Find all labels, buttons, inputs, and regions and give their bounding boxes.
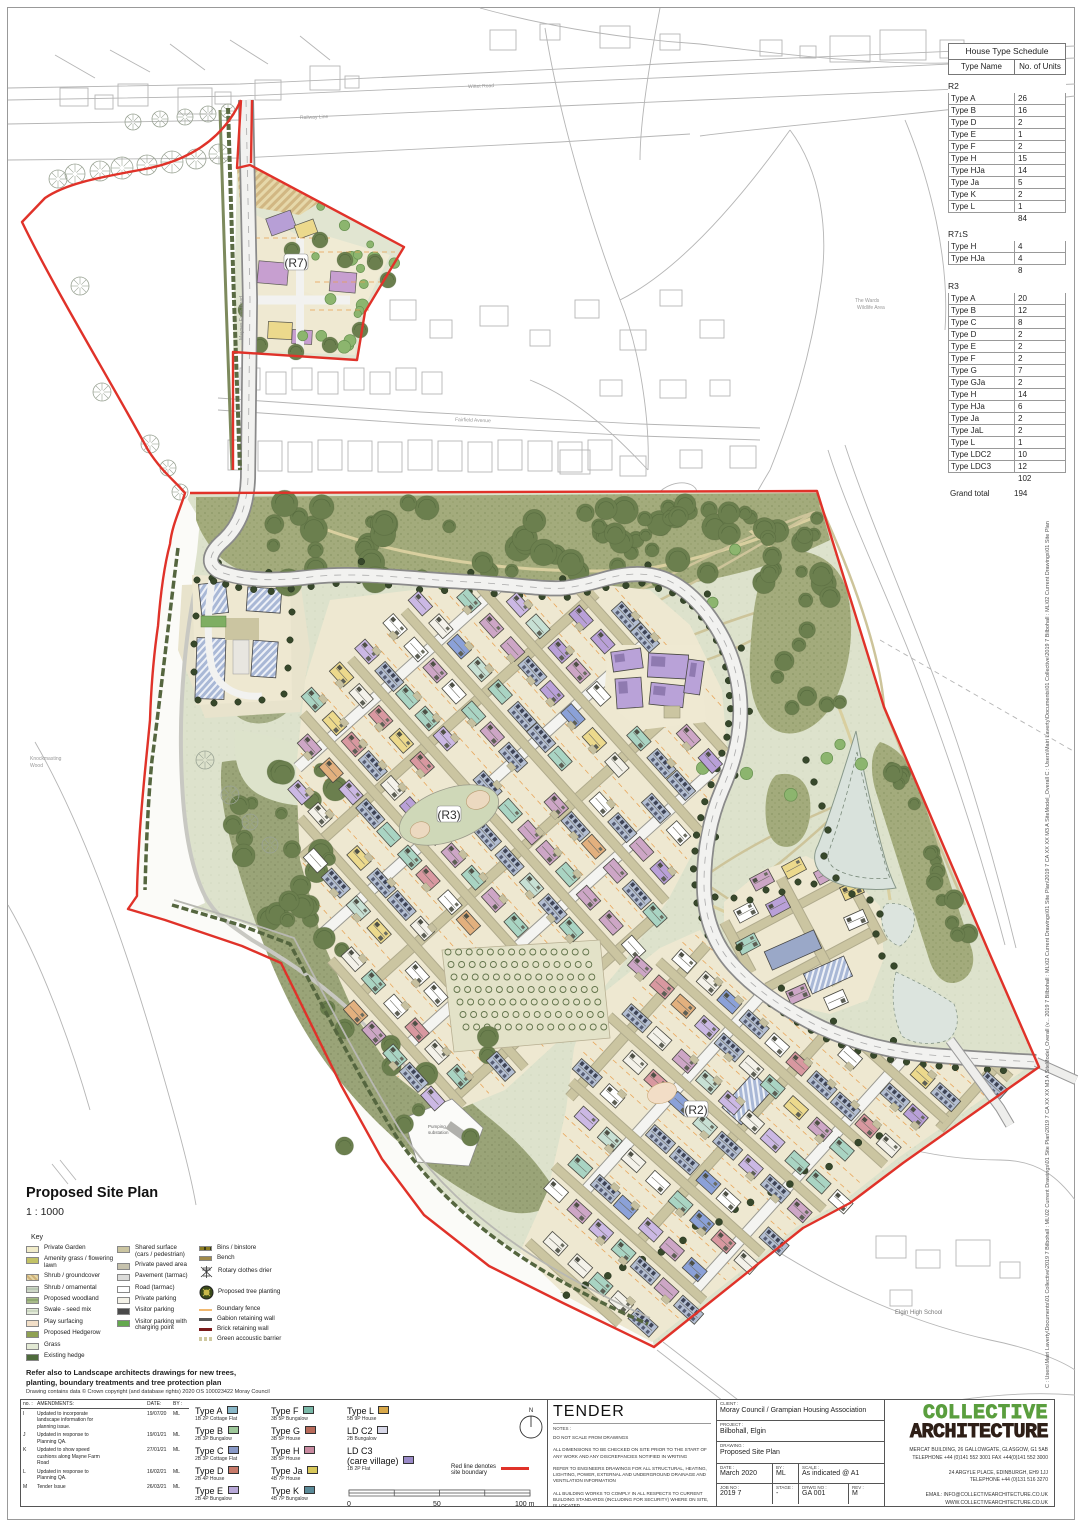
svg-text:C : Users\Mairi Laverty\Docume: C : Users\Mairi Laverty\Documents\01 Col… <box>1045 521 1051 1388</box>
svg-text:0: 0 <box>347 1501 351 1508</box>
svg-text:Wittet Road: Wittet Road <box>468 83 495 90</box>
svg-text:50: 50 <box>433 1501 441 1508</box>
svg-text:(R7): (R7) <box>284 256 307 270</box>
svg-text:(R3): (R3) <box>437 808 460 822</box>
svg-text:Knockmasting: Knockmasting <box>30 756 62 762</box>
svg-text:Wildlife Area: Wildlife Area <box>857 305 885 311</box>
svg-text:The Wards: The Wards <box>855 298 880 304</box>
svg-text:Pumping: Pumping <box>428 1124 446 1129</box>
svg-text:Railway Line: Railway Line <box>300 114 329 121</box>
svg-text:substation: substation <box>428 1130 449 1135</box>
svg-text:Elgin High School: Elgin High School <box>895 1310 942 1316</box>
svg-text:100 m: 100 m <box>515 1501 535 1508</box>
svg-text:Maynes Farm Road: Maynes Farm Road <box>239 296 245 340</box>
svg-text:Wood: Wood <box>30 763 43 769</box>
svg-text:(R2): (R2) <box>684 1103 707 1117</box>
svg-text:Fairfield Avenue: Fairfield Avenue <box>455 417 491 424</box>
